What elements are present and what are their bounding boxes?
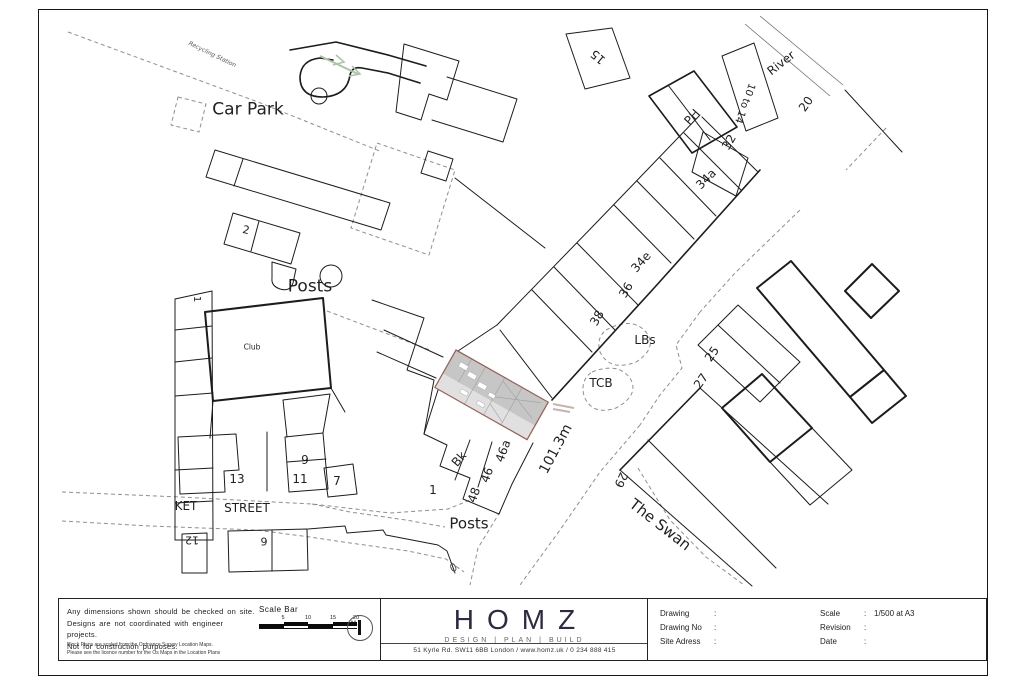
scale-tick: 10 (305, 615, 311, 621)
site-building (435, 350, 548, 440)
info-column-left: Drawing: Drawing No: Site Adress: (660, 609, 724, 651)
north-arrow-icon (347, 615, 373, 641)
info-row-drawing: Drawing: (660, 609, 724, 618)
info-row-drawing-no: Drawing No: (660, 623, 724, 632)
buildings (175, 16, 906, 586)
info-column-right: Scale: 1/500 at A3 Revision: Date: (820, 609, 914, 651)
logo-divider (381, 643, 648, 644)
smallprint-line: Block Plans are scaled from the Ordnance… (67, 642, 267, 650)
scale-bar-title: Scale Bar (259, 605, 369, 614)
scale-tick: 15 (330, 615, 336, 621)
note-line: Designs are not coordinated with enginee… (67, 618, 257, 641)
notes-panel: Any dimensions shown should be checked o… (58, 598, 382, 661)
info-row-revision: Revision: (820, 623, 914, 632)
info-panel: Drawing: Drawing No: Site Adress: Scale:… (647, 598, 987, 661)
flow-arrow (320, 56, 358, 74)
company-address: 51 Kyrle Rd. SW11 6BB London / www.homz.… (381, 647, 648, 654)
drawing-sheet: Recycling StationCar Park2PostsClub11391… (0, 0, 1024, 683)
scale-bar-graphic (259, 622, 357, 629)
info-row-date: Date: (820, 637, 914, 646)
info-row-site-address: Site Adress: (660, 637, 724, 646)
site-annotation-faint (553, 404, 574, 412)
company-logo: HOMZ (381, 604, 648, 636)
smallprint-line: Please see the licence number for the Os… (67, 650, 267, 658)
site-plan-svg (0, 0, 1024, 683)
info-row-scale: Scale: 1/500 at A3 (820, 609, 914, 618)
notes-smallprint: Block Plans are scaled from the Ordnance… (67, 642, 267, 657)
logo-panel: HOMZ DESIGN | PLAN | BUILD 51 Kyrle Rd. … (380, 598, 649, 661)
scale-bar-ticks: 5 10 15 20 (259, 614, 359, 622)
note-line: Any dimensions shown should be checked o… (67, 606, 257, 618)
scale-tick: 5 (281, 615, 284, 621)
